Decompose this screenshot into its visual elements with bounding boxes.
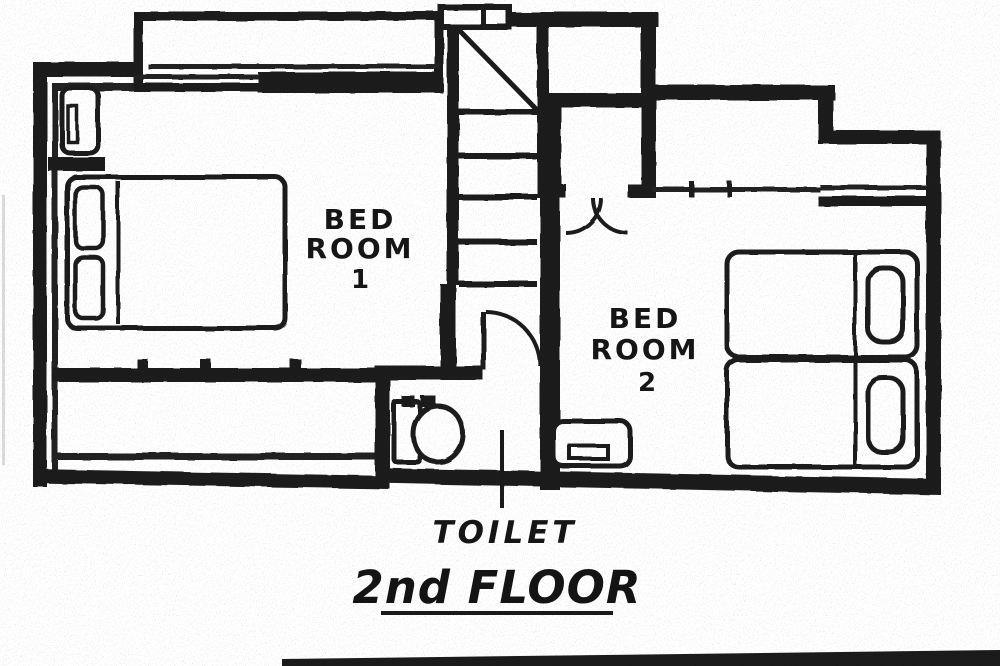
floor-plan-canvas: BED ROOM 1 BED ROOM 2 TOILET 2nd FLOOR <box>0 0 1000 666</box>
floor-plan-page: BED ROOM 1 BED ROOM 2 TOILET 2nd FLOOR <box>0 0 1000 666</box>
scan-grain-overlay <box>0 0 1000 666</box>
scan-artifacts <box>0 0 1000 666</box>
